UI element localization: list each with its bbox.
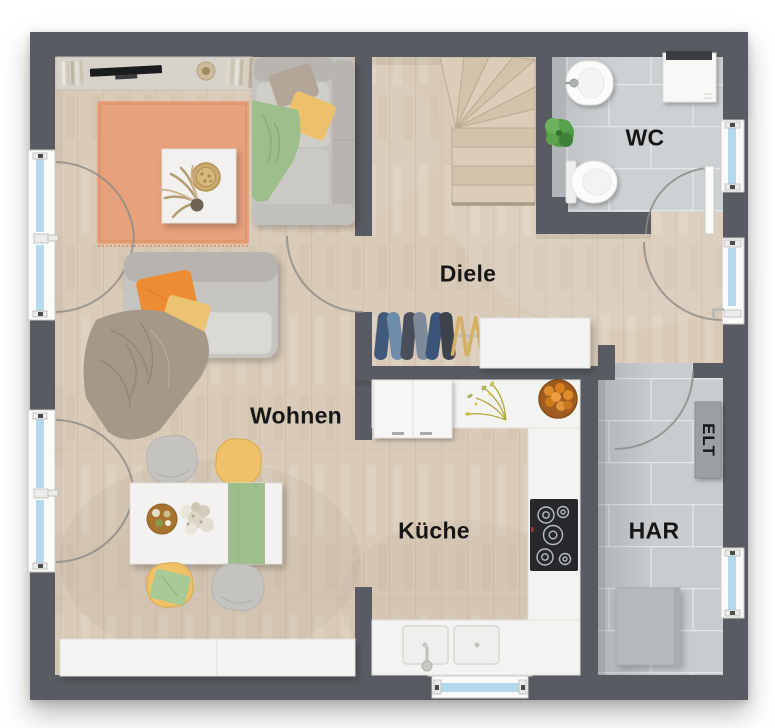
- wc-plant: [545, 118, 574, 147]
- fruit-bowl-table: [147, 504, 177, 534]
- floorplan-graphic: [0, 0, 775, 728]
- room-label-har: HAR: [629, 518, 680, 545]
- cooktop: [530, 499, 578, 571]
- coffee-table: [162, 149, 236, 223]
- har-appliance-box: [616, 588, 680, 665]
- room-label-wc: WC: [626, 125, 665, 152]
- table-runner: [228, 483, 265, 564]
- wall-har-top: [693, 363, 723, 378]
- window-har: [721, 548, 744, 618]
- kitchen-cabinet: [374, 380, 452, 438]
- sofa-top: [252, 57, 355, 225]
- room-label-diele: Diele: [440, 261, 496, 288]
- floorplan-canvas: Wohnen Diele WC Küche HAR ELT: [0, 0, 775, 728]
- wc-appliance: [663, 51, 716, 102]
- wardrobe-area: [374, 311, 590, 368]
- books-left: [62, 61, 84, 86]
- wall-kueche-har: [578, 378, 598, 675]
- window-wc: [721, 120, 744, 192]
- room-label-kueche: Küche: [398, 518, 470, 545]
- wall-corner-stub: [598, 345, 615, 380]
- wall-wohnen-diele-upper: [355, 57, 372, 236]
- fruit-bowl-kitchen: [539, 380, 577, 418]
- wall-wohnen-kueche-stub: [355, 587, 372, 675]
- chair-yellow-1: [214, 437, 263, 487]
- wall-wc-bottom: [536, 212, 651, 234]
- tv-sideboard: [56, 56, 253, 90]
- washbasin: [565, 61, 613, 105]
- toilet: [566, 161, 617, 203]
- staircase: [440, 57, 535, 206]
- room-label-elt: ELT: [698, 423, 718, 457]
- room-label-wohnen: Wohnen: [250, 403, 342, 430]
- wardrobe-cabinet: [480, 318, 590, 368]
- sideboard-bottom: [60, 639, 355, 676]
